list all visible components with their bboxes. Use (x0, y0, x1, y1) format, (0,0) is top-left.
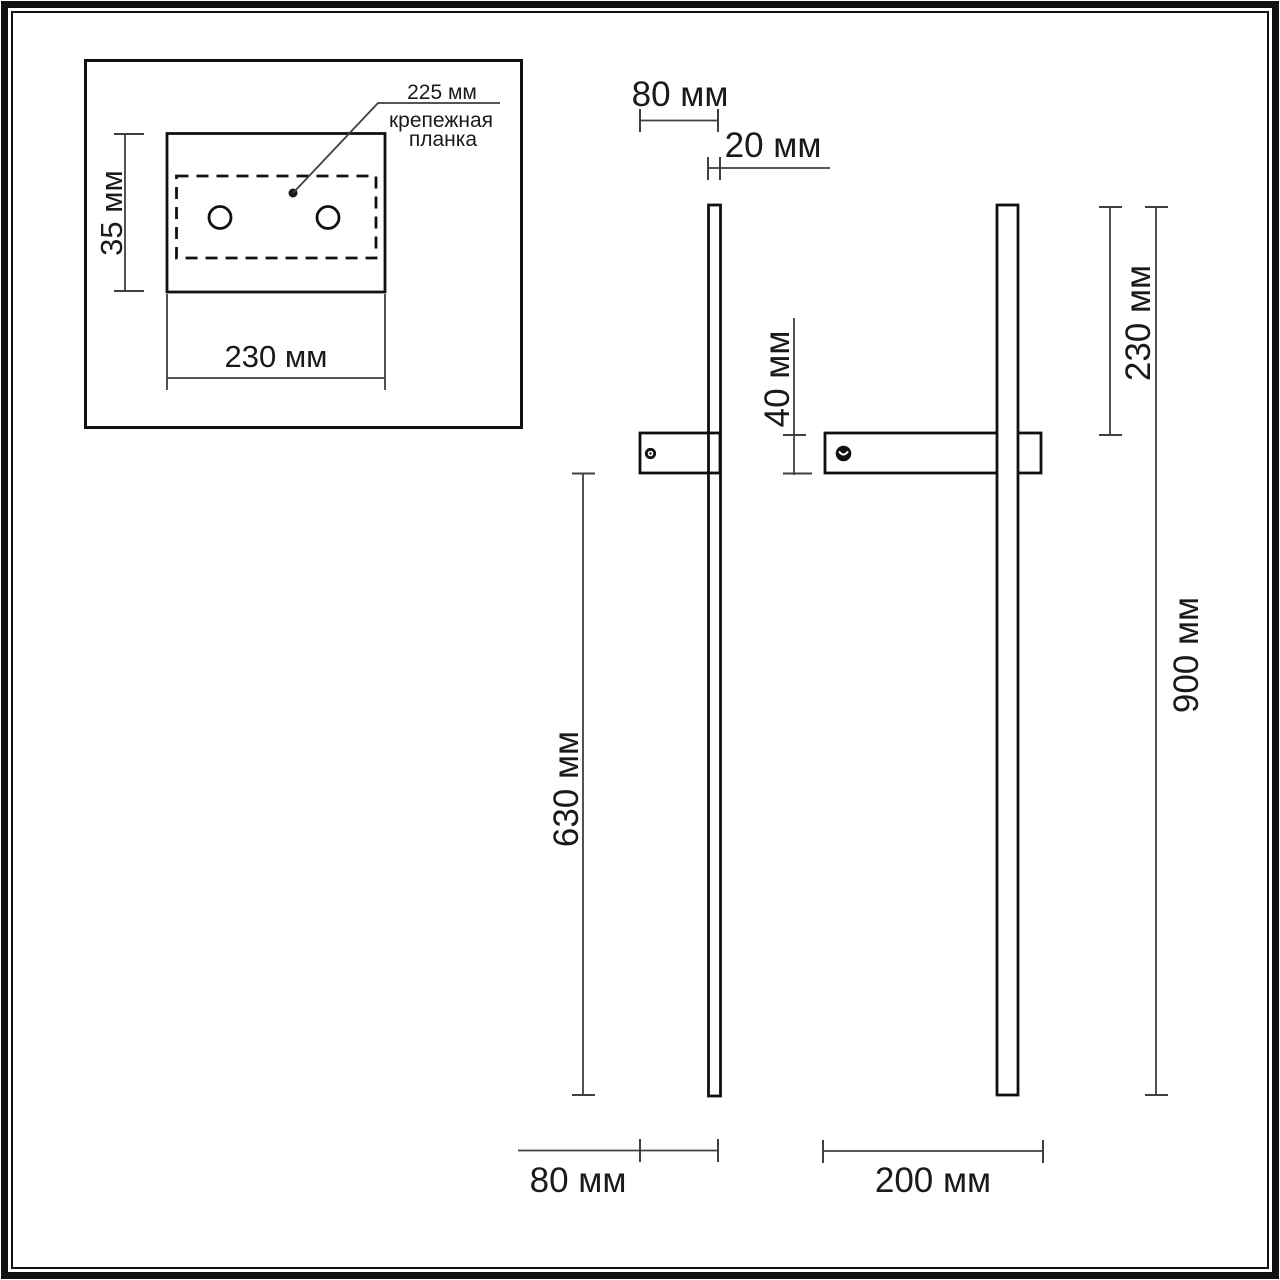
dim-label-bracket-width: 200 мм (875, 1161, 991, 1200)
detail-inset: 225 мм крепежная планка 35 мм 230 мм (86, 61, 522, 428)
outer-frame (5, 5, 1276, 1276)
dim-label-profile-thickness: 20 мм (725, 126, 822, 165)
dim-label-plate-height: 35 мм (94, 170, 129, 256)
side-view: 80 мм 20 мм 40 мм 630 мм (518, 75, 830, 1200)
dim-label-plate-length: 225 мм (407, 81, 477, 104)
dim-label-bracket-depth: 80 мм (632, 75, 729, 114)
mounting-plate-outline (177, 176, 377, 258)
plate-caption-line2: планка (409, 128, 478, 151)
dim-label-body-width: 230 мм (225, 339, 328, 374)
inner-frame (12, 12, 1268, 1268)
fixture-bar-front (997, 205, 1018, 1095)
dim-label-upper-length: 230 мм (1119, 265, 1158, 381)
screw-hole-right (317, 207, 339, 229)
drawing-page: 225 мм крепежная планка 35 мм 230 мм 80 … (0, 0, 1280, 1280)
dim-label-lower-length: 630 мм (547, 731, 586, 847)
dim-label-overall-length: 900 мм (1167, 597, 1206, 713)
fixture-back-plate (167, 134, 385, 293)
bracket-screw-center (649, 452, 651, 454)
technical-drawing: 225 мм крепежная планка 35 мм 230 мм 80 … (0, 0, 1280, 1280)
screw-hole-left (209, 207, 231, 229)
dim-label-bracket-height: 40 мм (758, 331, 797, 428)
dim-label-bottom-bracket-depth: 80 мм (530, 1161, 627, 1200)
fixture-bar-side (709, 205, 721, 1096)
front-view: 230 мм 900 мм 200 мм (823, 205, 1206, 1200)
